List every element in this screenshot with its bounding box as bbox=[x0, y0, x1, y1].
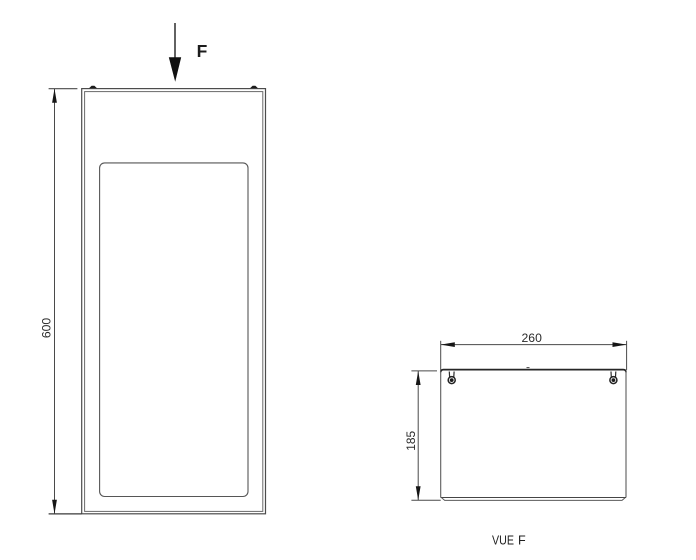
svg-text:VUE: VUE bbox=[492, 533, 514, 547]
svg-text:600: 600 bbox=[39, 318, 53, 339]
svg-text:F: F bbox=[197, 41, 208, 61]
svg-text:260: 260 bbox=[522, 331, 543, 345]
svg-text:185: 185 bbox=[404, 430, 418, 450]
svg-text:F: F bbox=[518, 533, 526, 547]
